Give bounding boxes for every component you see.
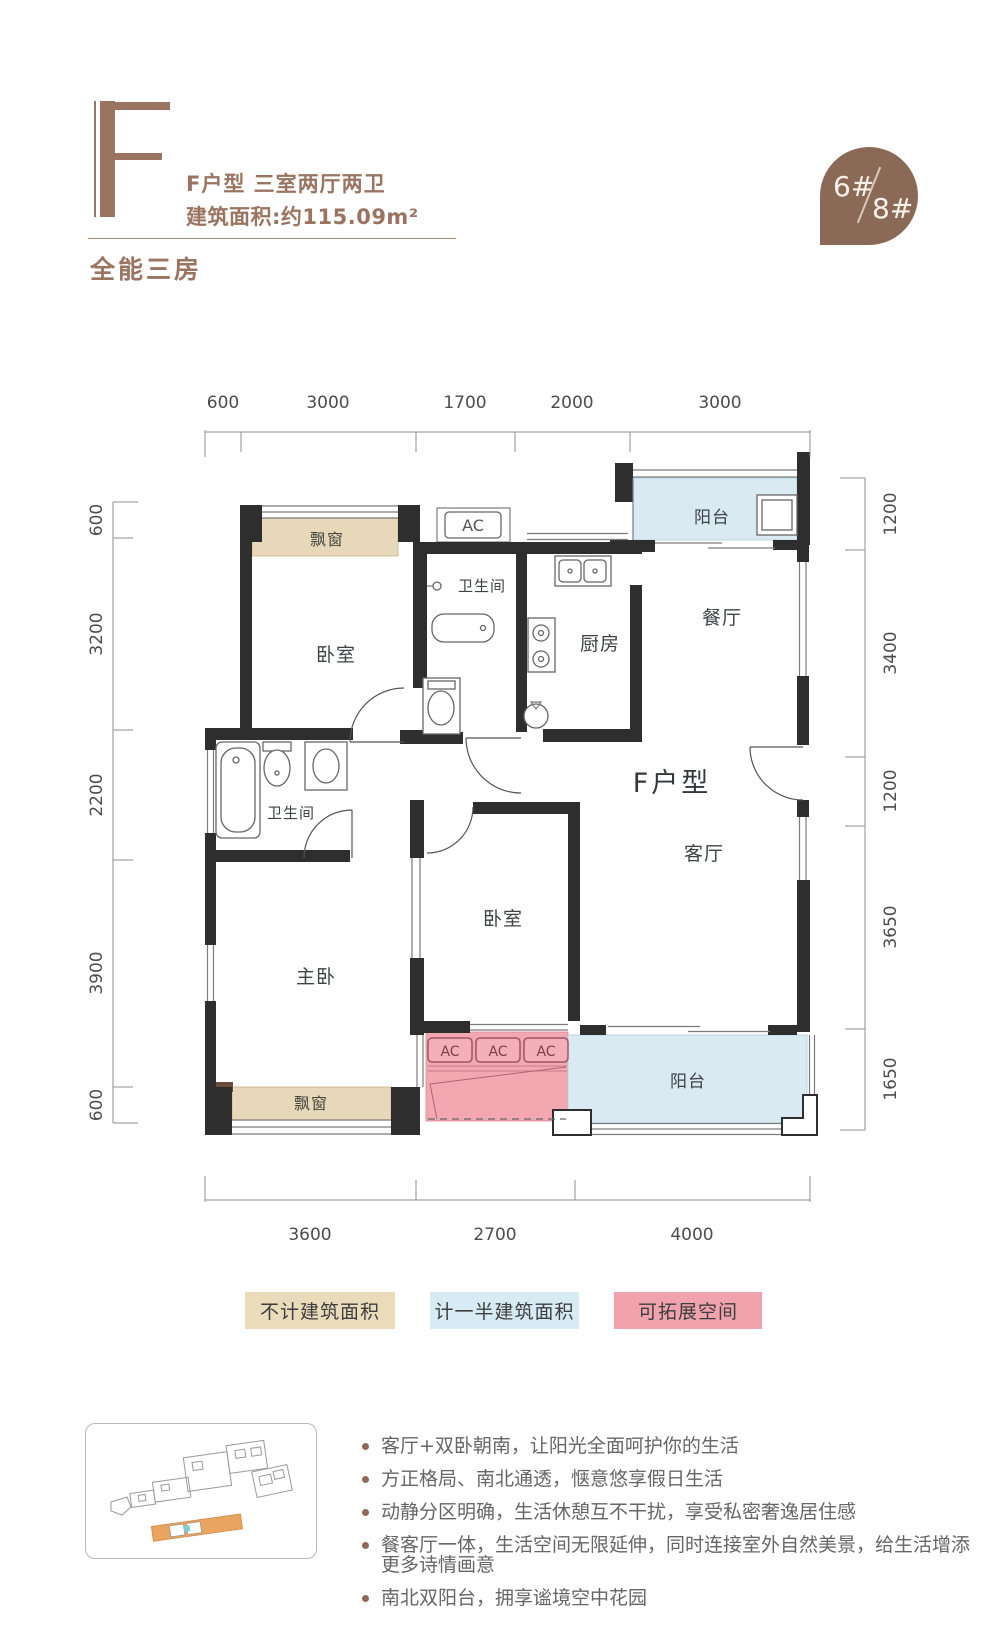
bedroom-middle-door [427, 807, 473, 853]
room-label-bathroom-top: 卫生间 [458, 577, 506, 595]
feature-text: 动静分区明确，生活休憩互不干扰，享受私密奢逸居住感 [381, 1502, 856, 1522]
unit-label: F户型 [633, 768, 712, 799]
room-label-balcony-north: 阳台 [694, 508, 730, 528]
highlighted-building [151, 1514, 242, 1541]
dim-left-0: 600 [87, 504, 107, 536]
feature-list: 客厅+双卧朝南，让阳光全面呵护你的生活 方正格局、南北通透，惬意悠享假日生活 动… [362, 1436, 972, 1621]
doors [304, 688, 803, 858]
room-label-dining: 餐厅 [702, 607, 742, 629]
feature-item: 动静分区明确，生活休憩互不干扰，享受私密奢逸居住感 [362, 1502, 972, 1522]
room-label-balcony-south: 阳台 [670, 1072, 706, 1092]
legend-not-counted-label: 不计建筑面积 [260, 1297, 380, 1324]
bathroom-top-door [466, 738, 521, 793]
dim-top-2: 1700 [443, 393, 486, 413]
bullet-icon [362, 1595, 369, 1602]
feature-text: 餐客厅一体，生活空间无限延伸，同时连接室外自然美景，给生活增添更多诗情画意 [381, 1535, 972, 1575]
page-subtitle: 全能三房 [90, 250, 202, 286]
room-label-bathroom-left: 卫生间 [267, 804, 315, 822]
legend-expandable-label: 可拓展空间 [638, 1297, 738, 1324]
feature-item: 餐客厅一体，生活空间无限延伸，同时连接室外自然美景，给生活增添更多诗情画意 [362, 1535, 972, 1575]
colored-zones [209, 478, 807, 1123]
dim-top-1: 3000 [306, 393, 349, 413]
feature-item: 方正格局、南北通透，惬意悠享假日生活 [362, 1469, 972, 1489]
label-bay-window-top: 飘窗 [310, 530, 344, 549]
room-label-living: 客厅 [684, 843, 724, 865]
feature-text: 客厅+双卧朝南，让阳光全面呵护你的生活 [381, 1436, 739, 1456]
bullet-icon [362, 1443, 369, 1450]
badge-number-right: 8# [872, 192, 913, 225]
header-divider [88, 238, 456, 239]
dim-left-1: 3200 [87, 612, 107, 655]
title-block: F户型 三室两厅两卫 建筑面积:约115.09m² [186, 168, 419, 231]
dim-right-2: 1200 [881, 769, 901, 812]
dim-left-3: 3900 [87, 951, 107, 994]
room-label-bedroom-middle: 卧室 [483, 908, 523, 930]
dim-right-3: 3650 [881, 905, 901, 948]
feature-item: 南北双阳台，拥享谧境空中花园 [362, 1588, 972, 1608]
label-bay-window-bottom: 飘窗 [294, 1094, 328, 1113]
site-plan-drawing [86, 1424, 314, 1556]
floorplan-poster: F户型 三室两厅两卫 建筑面积:约115.09m² 6# 8# 全能三房 AC [0, 0, 1000, 1638]
ac-label-2: AC [488, 1044, 507, 1060]
dim-bottom-0: 3600 [288, 1225, 331, 1245]
legend-half-counted: 计一半建筑面积 [430, 1292, 579, 1329]
legend-expandable: 可拓展空间 [614, 1292, 762, 1329]
dim-top-4: 3000 [698, 393, 741, 413]
unit-title: F户型 三室两厅两卫 [186, 168, 419, 198]
dim-left-4: 600 [87, 1089, 107, 1121]
dim-right-1: 3400 [881, 631, 901, 674]
dim-right-4: 1650 [881, 1057, 901, 1100]
building-number-badge: 6# 8# [820, 147, 918, 245]
ac-label-top: AC [462, 516, 484, 535]
bullet-icon [362, 1509, 369, 1516]
bedroom-top-door [350, 688, 404, 742]
dim-bottom-2: 4000 [670, 1225, 713, 1245]
entry-door [750, 747, 803, 800]
ac-label-1: AC [440, 1044, 459, 1060]
legend-half-counted-label: 计一半建筑面积 [434, 1297, 574, 1324]
legend-not-counted: 不计建筑面积 [245, 1292, 395, 1329]
dim-bottom-1: 2700 [473, 1225, 516, 1245]
ac-platform-top: AC [437, 508, 510, 542]
dim-top-0: 600 [207, 393, 239, 413]
dim-left-2: 2200 [87, 773, 107, 816]
feature-text: 南北双阳台，拥享谧境空中花园 [381, 1588, 647, 1608]
room-label-kitchen: 厨房 [580, 633, 620, 655]
unit-area: 建筑面积:约115.09m² [186, 201, 419, 231]
dim-top-3: 2000 [550, 393, 593, 413]
f-logo-icon [92, 100, 182, 220]
dim-right-0: 1200 [881, 492, 901, 535]
feature-text: 方正格局、南北通透，惬意悠享假日生活 [381, 1469, 723, 1489]
ac-label-3: AC [536, 1044, 555, 1060]
feature-item: 客厅+双卧朝南，让阳光全面呵护你的生活 [362, 1436, 972, 1456]
room-label-bedroom-top: 卧室 [316, 644, 356, 666]
floorplan-drawing: AC [0, 350, 1000, 1250]
bullet-icon [362, 1542, 369, 1549]
room-label-master: 主卧 [296, 966, 336, 988]
site-plan-thumbnail [85, 1423, 317, 1559]
bullet-icon [362, 1476, 369, 1483]
